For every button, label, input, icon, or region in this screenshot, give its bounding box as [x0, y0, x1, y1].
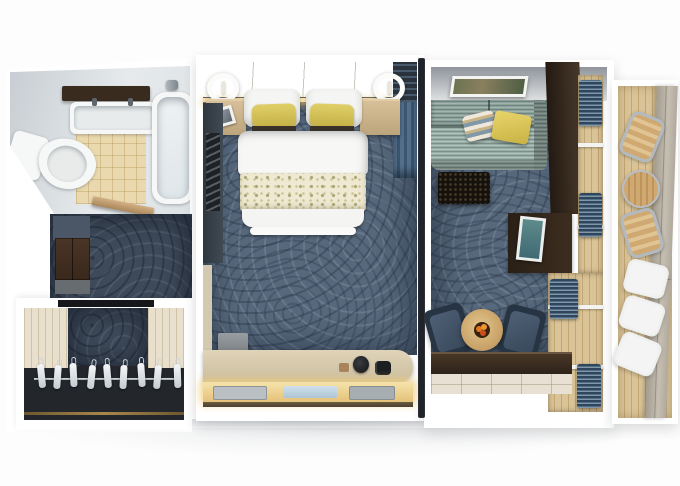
balcony-deck: [618, 86, 672, 418]
sink-basin: [74, 106, 154, 130]
fruit-bowl: [474, 322, 490, 338]
vanity-shelf: [62, 86, 150, 101]
cabinet-base: [55, 280, 90, 294]
pillow-yellow-right: [310, 103, 355, 129]
framed-art: [206, 133, 220, 211]
sink-faucet-icon: [128, 98, 133, 106]
sofa-front: [431, 160, 547, 170]
tub-faucet-icon: [166, 80, 178, 90]
curtain-bundle: [550, 279, 578, 319]
sofa: [431, 100, 547, 170]
duvet: [238, 131, 368, 175]
left-wing-panel: [6, 58, 192, 432]
bathroom: [10, 66, 190, 218]
sink-faucet-icon: [92, 98, 97, 106]
toilet-seat: [43, 141, 91, 187]
clothes-hanger: [53, 365, 62, 389]
clothes-hanger: [137, 363, 146, 387]
curtain-bundle: [579, 80, 602, 126]
entry-tile-strip: [431, 374, 572, 394]
living-room-panel: [424, 60, 614, 428]
clothes-hanger: [174, 364, 182, 388]
closet-interior: [24, 308, 184, 420]
plan-shadow-soft: [30, 428, 650, 458]
king-bed: [238, 85, 368, 237]
living-bottom-wall: [431, 352, 572, 374]
balcony-panel: [612, 80, 678, 424]
pillow-yellow-left: [252, 103, 297, 129]
desk-base-line: [203, 402, 413, 407]
accent-wall: [203, 103, 223, 263]
shelf-tray: [349, 386, 395, 400]
wall-art: [450, 76, 529, 97]
hall-wall: [53, 216, 90, 240]
clothes-hanger: [119, 365, 127, 389]
clothes-hanger: [87, 365, 96, 390]
clothes-hanger: [103, 364, 112, 389]
bathtub: [152, 92, 194, 204]
curtain-bundle: [579, 193, 602, 237]
bathtub-basin: [157, 97, 189, 199]
sink: [70, 102, 158, 134]
vanity-desk: [203, 350, 413, 382]
cabinet-door-seam: [72, 238, 73, 280]
sofa-armrest: [534, 100, 547, 170]
steel-tray: [213, 386, 267, 400]
walk-in-closet: [16, 298, 192, 430]
sun-lounger: [600, 257, 680, 390]
bed-runner: [240, 173, 366, 211]
curtain-bundle: [577, 364, 601, 408]
mug-set: [375, 361, 391, 375]
desk-tray-wood: [339, 363, 349, 372]
lounger-leg: [611, 330, 663, 379]
bedroom-panel: [196, 55, 424, 421]
ottoman: [438, 172, 490, 204]
foot-bench: [250, 227, 356, 235]
round-table: [461, 309, 503, 351]
room-divider: [418, 58, 425, 418]
leaning-art-image: [519, 219, 543, 259]
window-frame-bar: [578, 143, 603, 147]
wardrobe-cabinet: [55, 238, 90, 280]
closet-gold-trim: [24, 412, 184, 415]
leaning-art: [516, 216, 546, 262]
bed-foot: [242, 209, 364, 227]
kettle: [353, 356, 369, 373]
armchair-seat: [502, 310, 541, 355]
suite-floorplan: [0, 0, 680, 486]
folded-towel: [283, 386, 337, 398]
bistro-table: [622, 170, 660, 208]
balcony-window-upper: [578, 75, 603, 273]
clothes-hanger: [153, 365, 162, 390]
media-cabinet: [508, 213, 572, 273]
closet-header-strip: [58, 300, 154, 307]
fruit-red: [480, 330, 486, 336]
wall-art-image: [453, 79, 525, 94]
yellow-pillow: [491, 110, 532, 145]
clothes-hanger: [69, 363, 77, 387]
lit-shelf: [203, 382, 413, 402]
